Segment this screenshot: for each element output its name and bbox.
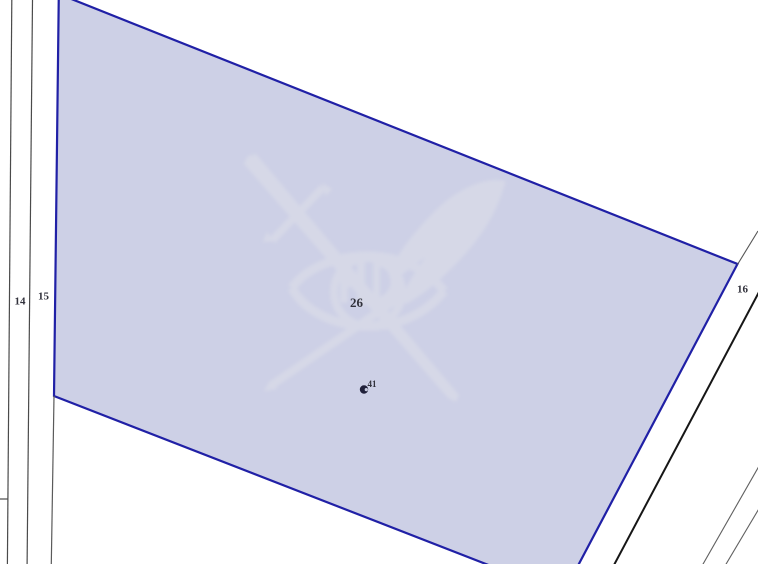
svg-text:15: 15: [38, 291, 50, 303]
svg-text:26: 26: [350, 295, 364, 310]
svg-text:16: 16: [737, 284, 749, 296]
svg-text:41: 41: [368, 379, 378, 389]
svg-text:14: 14: [15, 296, 27, 308]
